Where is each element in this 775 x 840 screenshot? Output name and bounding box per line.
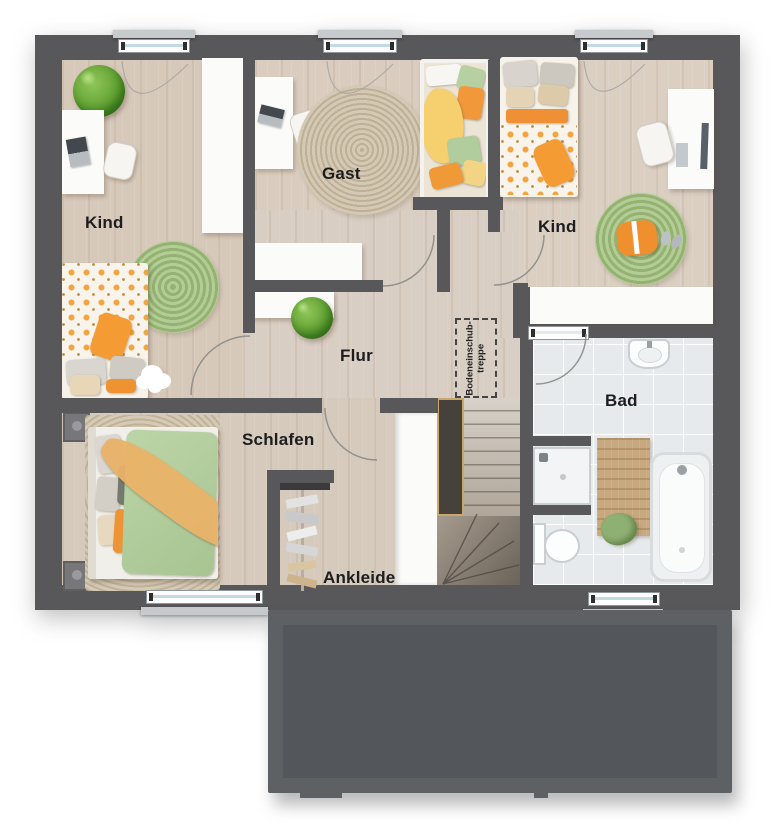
sink: [628, 339, 670, 369]
window-bottom-1: [146, 590, 263, 604]
pillow-tan-kr-2: [537, 83, 569, 106]
room-label-kind-right: Kind: [538, 217, 577, 237]
room-label-schlafen: Schlafen: [242, 430, 314, 450]
loft-ladder-label-line1: Bodeneinschub-: [465, 319, 476, 397]
bed-schlafen: [88, 427, 218, 579]
threshold-glass: [535, 331, 582, 334]
room-label-kind-left: Kind: [85, 213, 124, 233]
bed-gast: [420, 59, 490, 201]
roof-tab-2: [534, 791, 548, 798]
loft-ladder-label-line2: treppe: [476, 319, 487, 397]
window-sill-bottom-1: [141, 607, 268, 615]
room-label-gast: Gast: [322, 164, 361, 184]
sideboard-gast: [252, 243, 362, 281]
sink-basin: [638, 347, 662, 363]
wall-stub-stairs-west: [380, 398, 438, 413]
stairs-straight-treads: [464, 398, 520, 516]
roof-tab-1: [300, 791, 342, 798]
floor-pocket: [500, 232, 513, 338]
bathtub-faucet: [677, 465, 687, 475]
nightstand-knob-1: [72, 421, 82, 431]
shower-drain: [560, 474, 566, 480]
loft-ladder-label: Bodeneinschub- treppe: [465, 319, 488, 397]
pillow-orange-small: [106, 379, 136, 393]
toilet-bowl: [544, 529, 580, 563]
rug-gast: [297, 85, 427, 215]
wall-bad-west: [520, 338, 533, 585]
shower: [533, 447, 591, 505]
upper-floor-plan: Kind Gast Kind Flur Schlafen Ankleide Ba…: [35, 35, 740, 610]
plant-flur: [291, 297, 333, 339]
wall-ankleide-west: [267, 470, 280, 585]
window-tick: [641, 42, 645, 50]
pillow-orange-gast-2: [428, 161, 464, 190]
bad-door-threshold: [528, 326, 589, 340]
nightstand-knob-2: [72, 570, 82, 580]
pillow-tan: [70, 375, 100, 395]
shower-head: [539, 453, 548, 462]
bed-kind-left: [62, 263, 148, 399]
window-glass: [330, 44, 390, 47]
pillow-gray-kr-1: [502, 59, 539, 88]
window-tick: [653, 595, 657, 603]
window-tick: [256, 593, 260, 601]
wardrobe-kind-left: [202, 58, 243, 233]
pillow-tan-kr-1: [506, 87, 534, 107]
bathtub-drain: [679, 547, 685, 553]
window-sill-top-3: [575, 30, 653, 38]
window-top-2: [323, 39, 397, 53]
lower-roof-block: [268, 610, 732, 793]
bathtub-inner: [659, 463, 705, 573]
wall-stub-gast-door: [437, 210, 450, 292]
threshold-tick-right: [582, 329, 586, 337]
window-bottom-2: [588, 592, 660, 606]
wall-shower-north: [533, 436, 591, 446]
wall-bad-north: [588, 325, 713, 338]
window-top-1: [118, 39, 190, 53]
wall-kind-left-east: [243, 60, 255, 333]
bed-kind-right: [500, 57, 578, 197]
counter-kind-right: [530, 287, 713, 324]
window-glass: [595, 597, 653, 600]
wall-white-partition: [395, 413, 437, 585]
cloud-side-table: [141, 365, 163, 385]
window-tick: [183, 42, 187, 50]
window-top-3: [580, 39, 648, 53]
wall-kind-right-west: [488, 60, 500, 232]
wall-schlafen-north: [62, 398, 322, 413]
wall-stub-kind-right-sw: [513, 283, 528, 338]
pillow-yellow-gast: [460, 159, 488, 187]
window-glass: [587, 44, 641, 47]
window-glass: [153, 595, 256, 598]
room-label-bad: Bad: [605, 391, 638, 411]
window-glass: [125, 44, 183, 47]
pillow-orange-bar-kr: [506, 109, 568, 123]
window-sill-top-1: [113, 30, 195, 38]
floorplan-scene: Kind Gast Kind Flur Schlafen Ankleide Ba…: [0, 0, 775, 840]
room-label-ankleide: Ankleide: [323, 568, 395, 588]
loft-ladder-box: Bodeneinschub- treppe: [455, 318, 497, 398]
window-tick: [390, 42, 394, 50]
wall-gast-south: [243, 280, 383, 292]
sink-tap: [647, 341, 652, 348]
stairwell-void: [437, 398, 464, 516]
room-label-flur: Flur: [340, 346, 373, 366]
wall-shower-south: [533, 505, 591, 515]
window-sill-top-2: [318, 30, 402, 38]
keyboard-kind-right: [676, 143, 688, 167]
bathtub: [650, 452, 712, 582]
stairs-winder-treads: [437, 516, 520, 585]
